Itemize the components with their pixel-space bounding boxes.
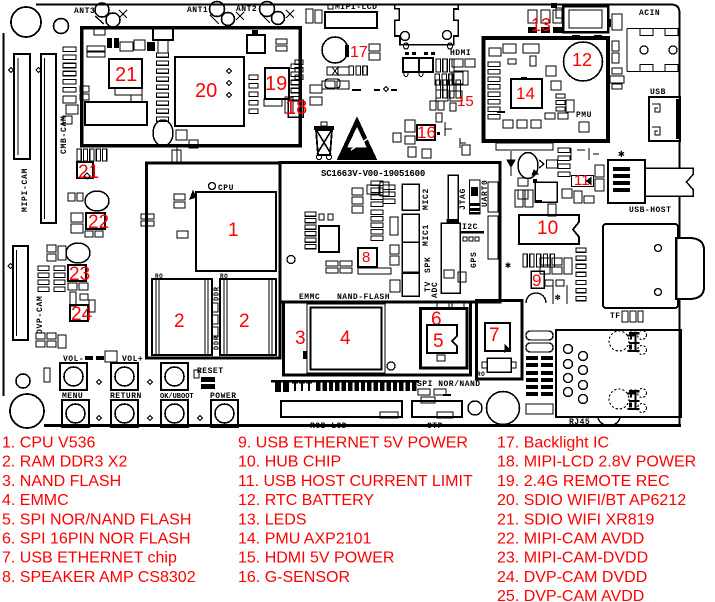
svg-text:20. SDIO WIFI/BT AP6212: 20. SDIO WIFI/BT AP6212 [497, 492, 686, 509]
svg-text:21: 21 [115, 64, 137, 86]
svg-text:4. EMMC: 4. EMMC [2, 492, 69, 509]
svg-text:18: 18 [285, 97, 307, 119]
svg-text:6: 6 [431, 309, 442, 330]
svg-text:10. HUB CHIP: 10. HUB CHIP [238, 454, 341, 471]
svg-text:I2C: I2C [462, 223, 478, 232]
svg-text:RESET: RESET [197, 367, 224, 376]
svg-text:9. USB ETHERNET 5V POWER: 9. USB ETHERNET 5V POWER [238, 435, 468, 452]
svg-text:5. SPI NOR/NAND FLASH: 5. SPI NOR/NAND FLASH [2, 511, 191, 528]
svg-text:10: 10 [537, 218, 558, 239]
svg-text:RO: RO [220, 273, 228, 280]
svg-text:14. PMU AXP2101: 14. PMU AXP2101 [238, 531, 372, 548]
svg-text:22: 22 [88, 212, 109, 233]
svg-text:SPI NOR/NAND: SPI NOR/NAND [417, 380, 481, 389]
svg-text:7. USB ETHERNET chip: 7. USB ETHERNET chip [2, 550, 177, 567]
svg-text:USB-HOST: USB-HOST [629, 206, 671, 215]
svg-text:1. CPU V536: 1. CPU V536 [2, 435, 95, 452]
svg-text:ANT2: ANT2 [236, 5, 257, 14]
svg-text:ACIN: ACIN [639, 9, 660, 18]
svg-text:23. MIPI-CAM-DVDD: 23. MIPI-CAM-DVDD [497, 550, 648, 567]
svg-text:CTP: CTP [427, 422, 443, 431]
svg-text:1: 1 [228, 220, 239, 241]
svg-text:22. MIPI-CAM AVDD: 22. MIPI-CAM AVDD [497, 531, 644, 548]
svg-text:23: 23 [69, 264, 90, 285]
svg-text:RO: RO [155, 273, 163, 280]
svg-text:MIPI-CAM: MIPI-CAM [21, 168, 30, 212]
svg-text:ANT1: ANT1 [187, 6, 208, 15]
svg-text:4: 4 [340, 328, 351, 349]
svg-text:MIC2: MIC2 [422, 188, 431, 210]
svg-text:RO: RO [477, 371, 485, 378]
svg-text:18. MIPI-LCD 2.8V POWER: 18. MIPI-LCD 2.8V POWER [497, 454, 696, 471]
svg-text:5: 5 [433, 331, 444, 352]
svg-text:TF: TF [610, 312, 621, 321]
svg-text:12. RTC BATTERY: 12. RTC BATTERY [238, 492, 374, 509]
svg-text:2. RAM DDR3 X2: 2. RAM DDR3 X2 [2, 454, 127, 471]
svg-text:17. Backlight IC: 17. Backlight IC [497, 435, 609, 452]
svg-text:20: 20 [195, 80, 217, 102]
svg-text:8. SPEAKER AMP CS8302: 8. SPEAKER AMP CS8302 [2, 569, 196, 586]
svg-text:ADC: ADC [431, 281, 440, 298]
svg-text:2: 2 [239, 311, 250, 332]
svg-text:17: 17 [350, 44, 368, 61]
svg-text:3. NAND FLASH: 3. NAND FLASH [2, 473, 121, 490]
svg-text:HDMI: HDMI [450, 49, 471, 58]
svg-text:15: 15 [457, 93, 474, 110]
svg-text:21: 21 [78, 162, 99, 183]
svg-text:13: 13 [531, 15, 551, 35]
svg-text:8: 8 [362, 249, 370, 266]
svg-text:ANT3: ANT3 [74, 7, 95, 16]
svg-text:USB: USB [650, 88, 666, 97]
svg-text:14: 14 [516, 84, 535, 103]
svg-text:SC1663V-V00-19051600: SC1663V-V00-19051600 [321, 169, 425, 179]
svg-text:SPK: SPK [424, 256, 433, 273]
svg-text:DDR: DDR [214, 286, 222, 301]
svg-text:16. G-SENSOR: 16. G-SENSOR [238, 569, 350, 586]
svg-text:MIPI-LCD: MIPI-LCD [335, 3, 377, 12]
svg-text:RGB-LCD: RGB-LCD [310, 422, 347, 431]
svg-text:✽: ✽ [555, 293, 561, 303]
svg-text:7: 7 [489, 325, 500, 346]
svg-text:DDR: DDR [214, 335, 222, 350]
svg-text:GPS: GPS [470, 251, 479, 268]
svg-text:19. 2.4G REMOTE REC: 19. 2.4G REMOTE REC [497, 473, 670, 490]
svg-text:JTAG: JTAG [459, 188, 468, 210]
svg-text:DVP-CAM: DVP-CAM [36, 295, 45, 334]
svg-text:✱: ✱ [505, 261, 512, 272]
svg-text:11. USB HOST CURRENT LIMIT: 11. USB HOST CURRENT LIMIT [238, 473, 473, 490]
svg-text:3: 3 [295, 328, 306, 349]
svg-text:PMU: PMU [576, 111, 592, 120]
svg-text:19: 19 [265, 73, 287, 95]
svg-text:21. SDIO WIFI XR819: 21. SDIO WIFI XR819 [497, 511, 654, 528]
svg-text:RJ45: RJ45 [569, 418, 590, 427]
svg-text:6. SPI 16PIN NOR FLASH: 6. SPI 16PIN NOR FLASH [2, 531, 191, 548]
svg-text:CMB-CAM: CMB-CAM [60, 115, 69, 154]
svg-text:16: 16 [417, 123, 436, 142]
svg-text:12: 12 [572, 50, 592, 70]
svg-text:MIC1: MIC1 [422, 224, 431, 246]
svg-text:2: 2 [174, 311, 185, 332]
svg-text:24. DVP-CAM DVDD: 24. DVP-CAM DVDD [497, 569, 647, 586]
svg-text:15. HDMI 5V POWER: 15. HDMI 5V POWER [238, 550, 394, 567]
svg-text:13. LEDS: 13. LEDS [238, 511, 306, 528]
svg-text:25. DVP-CAM AVDD: 25. DVP-CAM AVDD [497, 588, 644, 602]
